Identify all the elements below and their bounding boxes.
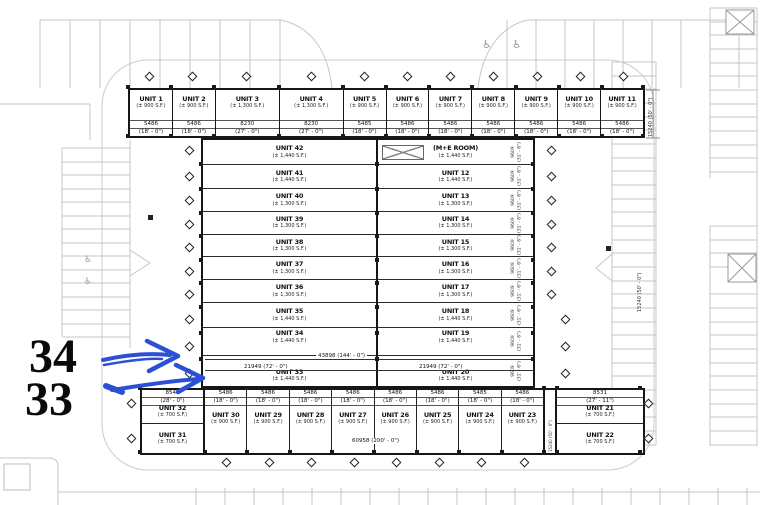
unit-cell: 8531 (27' - 11") UNIT 21(± 700 S.F.) UNI…: [557, 388, 645, 455]
unit-area: (± 900 S.F.): [565, 103, 594, 109]
unit-name: UNIT 12: [442, 170, 469, 177]
unit-cell: UNIT 41(± 1,440 S.F.): [203, 165, 376, 190]
depth-dim-ft: (31' - 6"): [518, 305, 523, 325]
door-marker-icon: [619, 72, 629, 82]
unit-width-dim: 5486: [290, 390, 331, 398]
unit-name: UNIT 22: [557, 432, 643, 439]
unit-width-dim: 5486: [515, 120, 557, 128]
unit-name: UNIT 32: [142, 405, 203, 412]
door-marker-icon: [222, 458, 232, 468]
unit-width-ft: (18' - 0"): [601, 128, 643, 136]
wall-divider: [142, 423, 203, 424]
arrow-34-shaft2: [104, 359, 162, 365]
door-marker-icon: [185, 196, 195, 206]
door-marker-icon: [127, 434, 137, 444]
unit-cell: UNIT 35(± 1,440 S.F.): [203, 303, 376, 328]
depth-dim: 9609: [511, 194, 516, 205]
door-marker-icon: [561, 369, 571, 379]
unit-area: (± 1,300 S.F.): [272, 223, 306, 229]
unit-cell: UNIT 17(± 1,300 S.F.)9609(31' - 6"): [378, 280, 533, 303]
unit-width-dim: 5486: [387, 120, 429, 128]
unit-area: (± 1,300 S.F.): [438, 201, 472, 207]
depth-dim-ft: (31' - 6"): [518, 213, 523, 233]
unit-width-dim: 8230: [216, 120, 279, 128]
depth-dim: 9609: [511, 336, 516, 347]
unit-width-ft: (18' - 0"): [290, 398, 331, 406]
parking-bottom: [0, 458, 760, 505]
door-marker-icon: [127, 399, 137, 409]
unit-cell: UNIT 4(± 1,300 S.F.)8230(27' - 0"): [280, 90, 344, 136]
unit-width-ft: (18' - 0"): [205, 398, 246, 406]
unit-area: (± 900 S.F.): [522, 103, 551, 109]
unit-width-ft: (18' - 0"): [247, 398, 288, 406]
door-marker-icon: [185, 220, 195, 230]
door-marker-icon: [547, 196, 557, 206]
unit-area: (± 1,440 S.F.): [272, 316, 306, 322]
unit-area: (± 700 S.F.): [142, 439, 203, 445]
dimension-depth-parking: 15240 (50' - 0"): [637, 272, 643, 312]
unit-width-ft: (18' - 0"): [502, 398, 543, 406]
unit-width-ft: (18' - 0"): [332, 398, 373, 406]
unit-width-dim: 5486: [558, 120, 600, 128]
unit-name: UNIT 37: [276, 261, 303, 268]
corridor-depth-dim: 15240 (50' - 0"): [548, 420, 553, 452]
door-marker-icon: [547, 290, 557, 300]
unit-name: UNIT 2: [182, 96, 205, 103]
dimension-half-right: 21949 (72' - 0"): [417, 364, 465, 370]
door-marker-icon: [392, 458, 402, 468]
unit-cell: UNIT 14(± 1,300 S.F.)9609(31' - 6"): [378, 212, 533, 235]
unit-cell: UNIT 36(± 1,300 S.F.): [203, 280, 376, 303]
unit-width-dim: 5485: [459, 390, 500, 398]
door-marker-icon: [403, 72, 413, 82]
unit-name: UNIT 19: [442, 330, 469, 337]
door-marker-icon: [446, 72, 456, 82]
unit-area: (± 1,300 S.F.): [272, 292, 306, 298]
unit-width-ft: (18' - 0"): [459, 398, 500, 406]
unit-name: UNIT 39: [276, 216, 303, 223]
door-marker-icon: [350, 458, 360, 468]
depth-dim-ft: (31' - 6"): [518, 235, 523, 255]
unit-width-dim: 5486: [417, 390, 458, 398]
unit-name: UNIT 42: [276, 145, 303, 152]
unit-cell: UNIT 1(± 900 S.F.)5486(18' - 0"): [130, 90, 173, 136]
door-marker-icon: [185, 315, 195, 325]
unit-area: (± 900 S.F.): [179, 103, 208, 109]
door-marker-icon: [185, 146, 195, 156]
depth-dim: 9609: [511, 217, 516, 228]
door-marker-icon: [145, 72, 155, 82]
unit-area: (± 900 S.F.): [211, 419, 240, 425]
dimension-line: [205, 370, 533, 371]
unit-area: (± 900 S.F.): [393, 103, 422, 109]
unit-area: (± 1,440 S.F.): [272, 153, 306, 159]
unit-width-dim: 5486: [601, 120, 643, 128]
door-marker-icon: [576, 72, 586, 82]
unit-area: (± 1,300 S.F.): [272, 269, 306, 275]
door-marker-icon: [489, 72, 499, 82]
door-marker-icon: [644, 399, 654, 409]
unit-cell: UNIT 8(± 900 S.F.)5486(18' - 0"): [472, 90, 515, 136]
door-marker-icon: [185, 290, 195, 300]
unit-cell: UNIT 2(± 900 S.F.)5486(18' - 0"): [173, 90, 216, 136]
unit-width-ft: (18' - 0"): [515, 128, 557, 136]
unit-name: UNIT 16: [442, 261, 469, 268]
unit-area: (± 1,440 S.F.): [272, 177, 306, 183]
arrow-33-tail: [106, 386, 122, 392]
unit-width-dim: 5486: [332, 390, 373, 398]
unit-name: UNIT 18: [442, 308, 469, 315]
unit-name: UNIT 10: [565, 96, 592, 103]
mid-left-unit-block: UNIT 42(± 1,440 S.F.) UNIT 41(± 1,440 S.…: [201, 138, 378, 388]
me-room-hatch-icon: [382, 145, 424, 160]
depth-dim-ft: (31' - 6"): [518, 258, 523, 278]
dimension-total: 43898 (144' - 0"): [316, 353, 367, 359]
unit-width-ft: (18' - 0"): [417, 398, 458, 406]
unit-cell: UNIT 37(± 1,300 S.F.): [203, 257, 376, 280]
unit-area: (± 1,440 S.F.): [438, 177, 472, 183]
unit-name: UNIT 3: [236, 96, 259, 103]
depth-dim: 9609: [511, 240, 516, 251]
utility-pad-icon: [726, 10, 754, 34]
unit-area: (± 900 S.F.): [253, 419, 282, 425]
unit-width-dim: 5486: [173, 120, 215, 128]
unit-width-ft: (18' - 0"): [472, 128, 514, 136]
unit-width-dim: 8230: [280, 120, 343, 128]
unit-cell: UNIT 18(± 1,440 S.F.)9609(31' - 6"): [378, 303, 533, 328]
door-marker-icon: [185, 243, 195, 253]
door-marker-icon: [435, 458, 445, 468]
door-marker-icon: [561, 315, 571, 325]
unit-width-dim: 5486: [502, 390, 543, 398]
unit-area: (± 1,440 S.F.): [438, 376, 472, 382]
unit-area: (± 900 S.F.): [508, 419, 537, 425]
door-marker-icon: [547, 267, 557, 277]
handicap-icon: ♿: [512, 38, 522, 51]
unit-area: (± 1,300 S.F.): [272, 201, 306, 207]
unit-cell: UNIT 40(± 1,300 S.F.): [203, 189, 376, 212]
arrow-34-head: [147, 341, 178, 371]
unit-area: (± 1,440 S.F.): [272, 376, 306, 382]
annotation-label-33: 33: [25, 376, 73, 424]
door-marker-icon: [307, 72, 317, 82]
handicap-icon: ♿: [84, 277, 92, 287]
unit-area: (± 700 S.F.): [557, 439, 643, 445]
door-marker-icon: [265, 458, 275, 468]
parking-left-island: [130, 250, 150, 276]
unit-name: UNIT 8: [482, 96, 505, 103]
unit-cell: 5485(18' - 0")UNIT 24(± 900 S.F.): [459, 390, 501, 453]
unit-area: (± 700 S.F.): [557, 412, 643, 418]
bottom-unit-cells: 5486(18' - 0")UNIT 30(± 900 S.F.) 5486(1…: [205, 388, 545, 455]
wall-divider: [557, 423, 643, 424]
door-marker-icon: [188, 72, 198, 82]
unit-area: (± 900 S.F.): [479, 103, 508, 109]
unit-width-dim: 5486: [247, 390, 288, 398]
unit-name: UNIT 41: [276, 170, 303, 177]
unit-area: (± 900 S.F.): [423, 419, 452, 425]
door-marker-icon: [185, 267, 195, 277]
depth-dim-ft: (31' - 6"): [518, 331, 523, 351]
unit-area: (± 900 S.F.): [465, 419, 494, 425]
pad-rect: [4, 464, 30, 490]
dimension-bottom: 60958 (200' - 0"): [350, 438, 401, 444]
unit-width-ft: (18' - 0"): [387, 128, 429, 136]
unit-width-ft: (18' - 0"): [344, 128, 386, 136]
unit-cell: UNIT 38(± 1,300 S.F.): [203, 235, 376, 258]
unit-cell: UNIT 19(± 1,440 S.F.)9609(31' - 6"): [378, 328, 533, 355]
unit-width-ft: (18' - 0"): [375, 398, 416, 406]
depth-dim-ft: (31' - 6"): [518, 166, 523, 186]
unit-cell: 5486(18' - 0")UNIT 30(± 900 S.F.): [205, 390, 247, 453]
unit-cell: UNIT 5(± 900 S.F.)5485(18' - 0"): [344, 90, 387, 136]
unit-cell: UNIT 13(± 1,300 S.F.)9609(31' - 6"): [378, 189, 533, 212]
unit-width-dim: 5486: [205, 390, 246, 398]
depth-dim: 9609: [511, 309, 516, 320]
handicap-icon: ♿: [84, 255, 92, 265]
dimension-line: [205, 359, 533, 360]
unit-name: UNIT 9: [525, 96, 548, 103]
unit-cell: UNIT 42(± 1,440 S.F.): [203, 140, 376, 165]
unit-area: (± 1,300 S.F.): [438, 269, 472, 275]
unit-width-dim: 5486: [375, 390, 416, 398]
unit-name: UNIT 36: [276, 284, 303, 291]
dimension-half-left: 21949 (72' - 0"): [242, 364, 290, 370]
door-marker-icon: [185, 172, 195, 182]
door-marker-icon: [185, 369, 195, 379]
unit-width-ft: (27' - 0"): [280, 128, 343, 136]
unit-width-dim: 5486: [130, 120, 172, 128]
unit-name: UNIT 25: [424, 412, 451, 419]
unit-area: (± 1,300 S.F.): [272, 246, 306, 252]
unit-name: UNIT 40: [276, 193, 303, 200]
depth-dim: 9609: [511, 171, 516, 182]
mid-right-unit-block: (M+E ROOM)(± 1,440 S.F.)9609(31' - 6") U…: [378, 138, 535, 388]
door-marker-icon: [644, 434, 654, 444]
unit-cell: UNIT 16(± 1,300 S.F.)9609(31' - 6"): [378, 257, 533, 280]
unit-name: UNIT 14: [442, 216, 469, 223]
door-marker-icon: [547, 172, 557, 182]
unit-cell: 5486(18' - 0")UNIT 23(± 900 S.F.): [502, 390, 543, 453]
site-plan: ♿ ♿ ♿ ♿ UNIT 1(± 900 S.F.)5486(18' - 0")…: [0, 0, 760, 505]
unit-area: (± 900 S.F.): [436, 103, 465, 109]
unit-cell: 5486(18' - 0")UNIT 29(± 900 S.F.): [247, 390, 289, 453]
unit-area: (± 900 S.F.): [136, 103, 165, 109]
top-unit-row: UNIT 1(± 900 S.F.)5486(18' - 0") UNIT 2(…: [128, 88, 645, 138]
unit-name: UNIT 29: [254, 412, 281, 419]
dimension-depth-right: 15240 (50' - 0"): [648, 97, 654, 137]
unit-name: (M+E ROOM): [433, 145, 478, 152]
parking-top-right: [478, 20, 742, 88]
unit-name: UNIT 13: [442, 193, 469, 200]
unit-width-dim: 8546: [142, 390, 203, 398]
door-marker-icon: [477, 458, 487, 468]
unit-area: (± 900 S.F.): [381, 419, 410, 425]
unit-name: UNIT 34: [276, 330, 303, 337]
unit-cell: UNIT 11(± 900 S.F.)5486(18' - 0"): [601, 90, 643, 136]
parking-top-left: [40, 20, 332, 88]
unit-cell: (M+E ROOM)(± 1,440 S.F.)9609(31' - 6"): [378, 140, 533, 165]
depth-dim: 9609: [511, 146, 516, 157]
unit-area: (± 900 S.F.): [350, 103, 379, 109]
unit-name: UNIT 27: [339, 412, 366, 419]
door-marker-icon: [360, 72, 370, 82]
unit-cell: 8546 (28' - 0") UNIT 32(± 700 S.F.) UNIT…: [140, 388, 205, 455]
depth-dim-ft: (31' - 6"): [518, 142, 523, 162]
bottom-unit-row: 8546 (28' - 0") UNIT 32(± 700 S.F.) UNIT…: [140, 388, 645, 455]
unit-name: UNIT 17: [442, 284, 469, 291]
unit-cell: UNIT 39(± 1,300 S.F.): [203, 212, 376, 235]
unit-cell: UNIT 6(± 900 S.F.)5486(18' - 0"): [387, 90, 430, 136]
unit-width-dim: 8531: [557, 390, 643, 398]
parking-right-outer: [710, 8, 757, 446]
unit-width-ft: (18' - 0"): [130, 128, 172, 136]
unit-cell: UNIT 9(± 900 S.F.)5486(18' - 0"): [515, 90, 558, 136]
unit-area: (± 1,440 S.F.): [438, 316, 472, 322]
unit-area: (± 700 S.F.): [142, 412, 203, 418]
arrow-34-shaft: [103, 354, 170, 360]
unit-width-dim: 5486: [429, 120, 471, 128]
door-marker-icon: [307, 458, 317, 468]
unit-area: (± 1,300 S.F.): [294, 103, 328, 109]
unit-area: (± 900 S.F.): [296, 419, 325, 425]
unit-area: (± 1,300 S.F.): [438, 246, 472, 252]
unit-name: UNIT 1: [139, 96, 162, 103]
door-marker-icon: [561, 342, 571, 352]
unit-name: UNIT 30: [212, 412, 239, 419]
unit-name: UNIT 11: [608, 96, 635, 103]
depth-dim-ft: (31' - 6"): [518, 190, 523, 210]
unit-name: UNIT 4: [300, 96, 323, 103]
unit-area: (± 1,300 S.F.): [230, 103, 264, 109]
depth-dim-ft: (31' - 6"): [518, 281, 523, 301]
unit-cell: 5486(18' - 0")UNIT 25(± 900 S.F.): [417, 390, 459, 453]
door-marker-icon: [547, 243, 557, 253]
unit-area: (± 1,440 S.F.): [438, 338, 472, 344]
unit-cell: UNIT 3(± 1,300 S.F.)8230(27' - 0"): [216, 90, 280, 136]
parking-left: [0, 104, 130, 348]
unit-name: UNIT 6: [396, 96, 419, 103]
utility-pad-icon: [728, 254, 756, 282]
unit-name: UNIT 38: [276, 239, 303, 246]
depth-dim: 9609: [511, 262, 516, 273]
unit-name: UNIT 15: [442, 239, 469, 246]
corridor: 15240 (50' - 0"): [545, 388, 557, 455]
unit-width-dim: 5486: [472, 120, 514, 128]
unit-area: (± 900 S.F.): [607, 103, 636, 109]
unit-area: (± 1,300 S.F.): [438, 292, 472, 298]
door-marker-icon: [242, 72, 252, 82]
door-marker-icon: [533, 72, 543, 82]
unit-name: UNIT 23: [509, 412, 536, 419]
unit-width-ft: (18' - 0"): [558, 128, 600, 136]
unit-cell: UNIT 34(± 1,440 S.F.): [203, 328, 376, 355]
unit-cell: 5486(18' - 0")UNIT 28(± 900 S.F.): [290, 390, 332, 453]
unit-area: (± 1,440 S.F.): [272, 338, 306, 344]
unit-name: UNIT 35: [276, 308, 303, 315]
unit-width-ft: (27' - 0"): [216, 128, 279, 136]
door-marker-icon: [547, 146, 557, 156]
parking-right-island: [596, 254, 612, 281]
unit-cell: UNIT 15(± 1,300 S.F.)9609(31' - 6"): [378, 235, 533, 258]
unit-name: UNIT 24: [466, 412, 493, 419]
handicap-icon: ♿: [482, 38, 492, 51]
depth-dim: 9609: [511, 285, 516, 296]
unit-cell: UNIT 7(± 900 S.F.)5486(18' - 0"): [429, 90, 472, 136]
unit-width-ft: (18' - 0"): [429, 128, 471, 136]
door-marker-icon: [185, 342, 195, 352]
unit-name: UNIT 26: [381, 412, 408, 419]
unit-name: UNIT 5: [353, 96, 376, 103]
door-marker-icon: [547, 220, 557, 230]
unit-area: (± 900 S.F.): [338, 419, 367, 425]
unit-name: UNIT 7: [439, 96, 462, 103]
unit-name: UNIT 31: [142, 432, 203, 439]
unit-width-dim: 5485: [344, 120, 386, 128]
unit-cell: UNIT 12(± 1,440 S.F.)9609(31' - 6"): [378, 165, 533, 190]
door-marker-icon: [520, 458, 530, 468]
unit-width-ft: (18' - 0"): [173, 128, 215, 136]
unit-name: UNIT 28: [297, 412, 324, 419]
unit-area: (± 1,300 S.F.): [438, 223, 472, 229]
unit-cell: UNIT 10(± 900 S.F.)5486(18' - 0"): [558, 90, 601, 136]
unit-area: (± 1,440 S.F.): [438, 153, 472, 159]
unit-name: UNIT 21: [557, 405, 643, 412]
